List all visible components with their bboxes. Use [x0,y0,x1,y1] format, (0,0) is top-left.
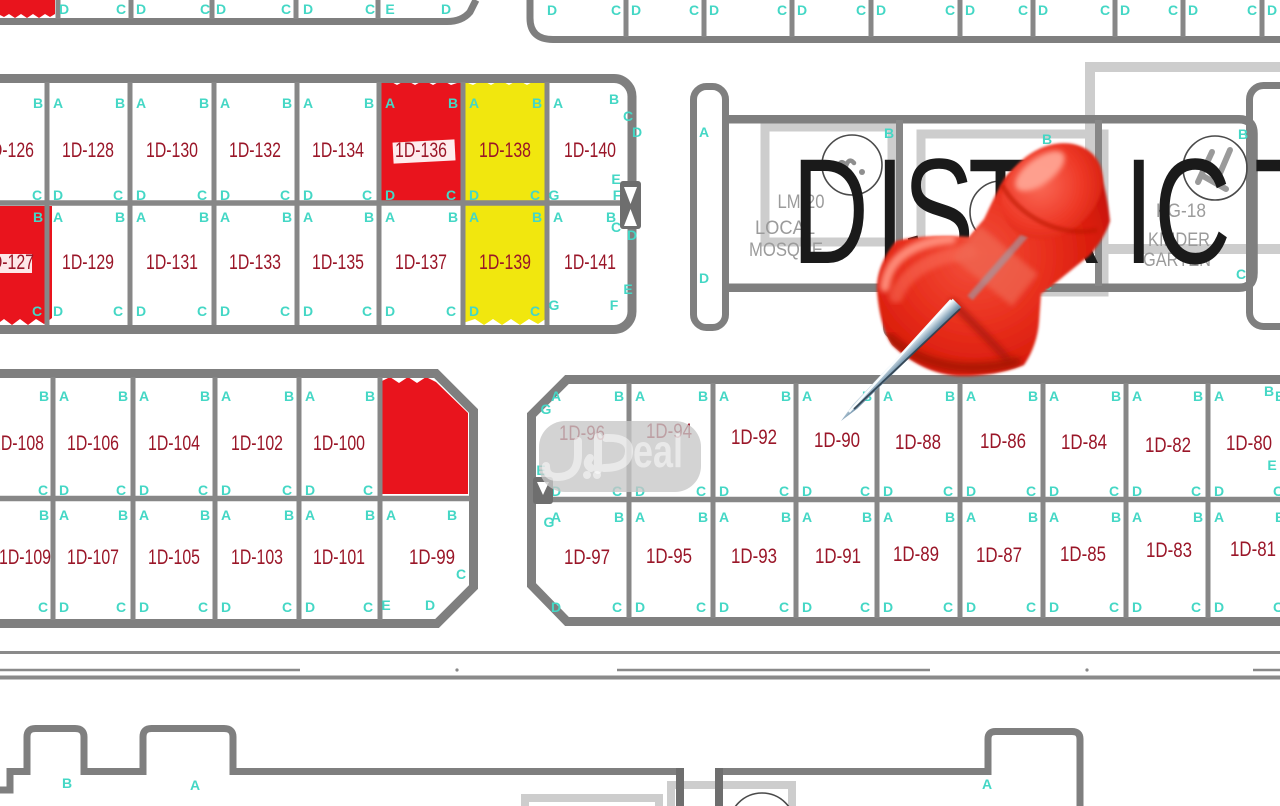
svg-text:C: C [1247,2,1257,18]
svg-text:A: A [59,507,69,523]
svg-text:B: B [1264,383,1274,399]
svg-text:D: D [303,187,313,203]
svg-text:A: A [635,509,645,525]
svg-text:A: A [1214,509,1224,525]
svg-text:E: E [381,597,390,613]
svg-text:1D-86: 1D-86 [980,430,1026,453]
svg-text:B: B [447,507,457,523]
svg-text:C: C [363,599,373,615]
svg-text:B: B [33,95,43,111]
svg-text:B: B [282,209,292,225]
svg-text:C: C [113,187,123,203]
svg-text:C: C [116,1,126,17]
svg-text:D: D [305,599,315,615]
svg-text:D: D [797,2,807,18]
svg-text:C: C [611,219,621,235]
svg-text:D: D [631,2,641,18]
svg-text:C: C [32,303,42,319]
svg-text:A: A [220,209,230,225]
svg-text:D: D [221,599,231,615]
svg-text:C: C [1191,483,1201,499]
svg-text:C: C [1236,266,1246,282]
svg-text:D: D [965,2,975,18]
svg-text:B: B [200,388,210,404]
svg-text:1D-136: 1D-136 [395,139,447,162]
svg-text:B: B [33,209,43,225]
svg-text:D: D [220,303,230,319]
svg-text:A: A [303,95,313,111]
svg-text:D: D [425,597,435,613]
svg-text:D: D [627,227,637,243]
svg-text:T: T [1254,127,1280,295]
svg-text:C: C [113,303,123,319]
svg-text:B: B [199,95,209,111]
svg-text:C: C [1026,483,1036,499]
svg-text:C: C [281,1,291,17]
svg-text:D: D [59,599,69,615]
svg-text:B: B [118,388,128,404]
svg-text:A: A [699,124,709,140]
svg-text:G: G [541,401,552,417]
svg-text:D: D [1049,599,1059,615]
svg-text:1D-137: 1D-137 [395,251,447,274]
svg-text:D: D [136,303,146,319]
svg-text:A: A [385,209,395,225]
svg-text:C: C [1273,599,1280,615]
svg-text:B: B [614,509,624,525]
svg-text:1D-97: 1D-97 [564,546,610,569]
svg-text:D: D [802,483,812,499]
svg-text:G: G [544,514,555,530]
svg-text:B: B [532,95,542,111]
svg-text:A: A [802,388,812,404]
svg-text:1D-141: 1D-141 [564,251,616,274]
svg-text:B: B [781,509,791,525]
svg-text:1D-85: 1D-85 [1060,543,1106,566]
svg-text:1D-140: 1D-140 [564,139,616,162]
svg-text:eal: eal [633,425,683,477]
svg-text:D: D [709,2,719,18]
svg-text:D: D [136,1,146,17]
svg-text:D: D [547,2,557,18]
svg-text:C: C [856,2,866,18]
svg-text:A: A [53,209,63,225]
svg-text:B: B [1193,388,1203,404]
svg-text:B: B [448,95,458,111]
svg-text:1D-126: 1D-126 [0,139,34,162]
svg-text:C: C [38,599,48,615]
svg-text:A: A [966,509,976,525]
svg-text:1D-130: 1D-130 [146,139,198,162]
svg-text:1D-132: 1D-132 [229,139,281,162]
svg-text:B: B [365,388,375,404]
svg-text:B: B [284,507,294,523]
svg-text:D: D [632,124,642,140]
svg-text:C: C [282,482,292,498]
svg-text:B: B [945,509,955,525]
svg-text:1D-83: 1D-83 [1146,539,1192,562]
svg-text:C: C [446,303,456,319]
svg-text:C: C [611,2,621,18]
svg-text:1D-104: 1D-104 [148,432,200,455]
svg-text:B: B [284,388,294,404]
svg-text:A: A [220,95,230,111]
svg-text:B: B [1111,509,1121,525]
svg-text:D: D [551,599,561,615]
svg-text:C: C [623,108,633,124]
svg-text:D: D [883,599,893,615]
svg-text:1D-138: 1D-138 [479,139,531,162]
svg-text:1D-105: 1D-105 [148,546,200,569]
svg-text:C: C [612,599,622,615]
svg-text:A: A [385,95,395,111]
svg-text:C: C [198,482,208,498]
svg-text:A: A [719,509,729,525]
svg-text:A: A [1214,388,1224,404]
svg-text:C: C [197,187,207,203]
svg-text:D: D [469,187,479,203]
svg-text:D: D [221,482,231,498]
svg-text:D: D [719,483,729,499]
svg-text:D: D [1188,2,1198,18]
svg-text:D: D [966,483,976,499]
svg-text:C: C [280,187,290,203]
svg-text:1D-89: 1D-89 [893,543,939,566]
svg-text:B: B [614,388,624,404]
svg-text:C: C [779,599,789,615]
svg-text:D: D [1214,599,1224,615]
svg-text:D: D [469,303,479,319]
svg-text:B: B [115,95,125,111]
svg-text:A: A [802,509,812,525]
svg-text:1D-81: 1D-81 [1230,538,1276,561]
svg-text:D: D [876,2,886,18]
svg-text:B: B [1028,509,1038,525]
svg-text:C: C [1191,599,1201,615]
svg-text:B: B [118,507,128,523]
svg-text:1D-129: 1D-129 [62,251,114,274]
svg-text:A: A [136,95,146,111]
svg-text:D: D [1038,2,1048,18]
svg-text:D: D [53,187,63,203]
svg-text:B: B [448,209,458,225]
svg-text:1D-103: 1D-103 [231,546,283,569]
svg-text:A: A [966,388,976,404]
svg-text:B: B [1238,126,1248,142]
svg-text:D: D [139,482,149,498]
svg-text:G: G [549,187,560,203]
svg-text:C: C [198,599,208,615]
svg-text:A: A [982,776,992,792]
svg-text:D: D [883,483,893,499]
svg-text:C: C [1026,599,1036,615]
svg-text:A: A [303,209,313,225]
svg-text:B: B [39,388,49,404]
svg-text:D: D [385,187,395,203]
svg-text:A: A [221,507,231,523]
svg-text:B: B [200,507,210,523]
svg-text:B: B [609,91,619,107]
svg-text:1D-99: 1D-99 [409,546,455,569]
svg-text:1D-101: 1D-101 [313,546,365,569]
svg-text:D: D [1267,2,1277,18]
svg-text:1D-109: 1D-109 [0,546,51,569]
svg-text:A: A [59,388,69,404]
svg-text:1D-106: 1D-106 [67,432,119,455]
svg-text:B: B [364,209,374,225]
svg-text:C: C [362,303,372,319]
svg-text:A: A [136,209,146,225]
svg-text:1D-107: 1D-107 [67,546,119,569]
svg-text:D: D [1214,483,1224,499]
svg-text:C: C [530,187,540,203]
svg-text:D: D [59,1,69,17]
svg-text:C: C [1100,2,1110,18]
svg-text:1D-92: 1D-92 [731,426,777,449]
svg-text:1D-134: 1D-134 [312,139,364,162]
svg-text:C: C [943,599,953,615]
svg-text:B: B [781,388,791,404]
svg-text:C: C [363,482,373,498]
svg-text:B: B [282,95,292,111]
svg-text:D: D [792,127,869,295]
svg-text:B: B [698,388,708,404]
svg-text:D: D [1049,483,1059,499]
svg-text:A: A [469,209,479,225]
svg-text:B: B [1275,388,1280,404]
svg-text:D: D [139,599,149,615]
svg-text:F: F [610,297,619,313]
svg-text:A: A [305,388,315,404]
svg-text:C: C [860,483,870,499]
svg-text:D: D [216,1,226,17]
svg-text:C: C [362,187,372,203]
svg-text:B: B [862,509,872,525]
svg-text:D: D [303,303,313,319]
svg-text:B: B [698,509,708,525]
svg-text:E: E [611,171,620,187]
svg-text:C: C [1109,483,1119,499]
svg-text:E: E [623,281,632,297]
svg-text:D: D [699,270,709,286]
svg-text:B: B [365,507,375,523]
svg-text:D: D [1132,483,1142,499]
svg-text:C: C [945,2,955,18]
svg-text:1D-80: 1D-80 [1226,432,1272,455]
svg-text:1D-90: 1D-90 [814,429,860,452]
svg-text:A: A [305,507,315,523]
svg-text:A: A [883,509,893,525]
svg-text:C: C [116,599,126,615]
svg-text:D: D [635,599,645,615]
svg-text:A: A [190,777,200,793]
svg-text:C: C [32,187,42,203]
svg-text:1D-82: 1D-82 [1145,434,1191,457]
svg-text:B: B [115,209,125,225]
svg-text:C: C [38,482,48,498]
svg-text:1D-128: 1D-128 [62,139,114,162]
svg-text:B: B [364,95,374,111]
svg-text:A: A [1049,388,1059,404]
svg-text:C: C [777,2,787,18]
svg-text:C: C [696,483,706,499]
svg-text:A: A [883,388,893,404]
svg-text:D: D [385,303,395,319]
svg-text:C: C [1168,2,1178,18]
svg-text:1D-95: 1D-95 [646,545,692,568]
svg-text:1D-84: 1D-84 [1061,431,1107,454]
svg-text:A: A [469,95,479,111]
svg-text:1D-139: 1D-139 [479,251,531,274]
svg-text:1D-133: 1D-133 [229,251,281,274]
svg-text:1D-108: 1D-108 [0,432,44,455]
svg-text:D: D [53,303,63,319]
svg-text:I: I [1124,127,1154,295]
svg-text:A: A [221,388,231,404]
svg-text:B: B [39,507,49,523]
svg-text:C: C [280,303,290,319]
svg-text:A: A [386,507,396,523]
svg-text:1D-87: 1D-87 [976,544,1022,567]
svg-text:A: A [1132,509,1142,525]
svg-text:B: B [62,775,72,791]
svg-text:A: A [139,507,149,523]
svg-text:C: C [365,1,375,17]
svg-text:C: C [116,482,126,498]
svg-text:C: C [200,1,210,17]
svg-text:D: D [59,482,69,498]
svg-text:D: D [1132,599,1142,615]
svg-text:D: D [303,1,313,17]
svg-text:C: C [1154,127,1231,295]
svg-text:C: C [860,599,870,615]
svg-text:1D-100: 1D-100 [313,432,365,455]
svg-text:A: A [553,95,563,111]
svg-text:E: E [385,1,394,17]
svg-text:C: C [1109,599,1119,615]
svg-text:C: C [446,187,456,203]
svg-text:A: A [139,388,149,404]
svg-text:B: B [532,209,542,225]
svg-text:B: B [945,388,955,404]
svg-text:D: D [1120,2,1130,18]
svg-text:C: C [530,303,540,319]
svg-text:C: C [282,599,292,615]
svg-text:1D-102: 1D-102 [231,432,283,455]
svg-text:C: C [1018,2,1028,18]
svg-text:B: B [1275,509,1280,525]
svg-text:B: B [199,209,209,225]
svg-text:B: B [1028,388,1038,404]
svg-text:G: G [549,297,560,313]
svg-text:E: E [1267,457,1276,473]
svg-text:A: A [1049,509,1059,525]
svg-text:D: D [802,599,812,615]
svg-text:1D-127: 1D-127 [0,251,34,274]
svg-text:D: D [719,599,729,615]
svg-text:A: A [553,209,563,225]
svg-text:D: D [441,1,451,17]
svg-text:B: B [1111,388,1121,404]
svg-text:1D-91: 1D-91 [815,545,861,568]
svg-text:D: D [136,187,146,203]
svg-text:A: A [719,388,729,404]
svg-text:C: C [456,566,466,582]
svg-text:C: C [943,483,953,499]
svg-text:1D-135: 1D-135 [312,251,364,274]
svg-text:C: C [1273,483,1280,499]
svg-text:C: C [197,303,207,319]
svg-text:A: A [635,388,645,404]
svg-text:1D-131: 1D-131 [146,251,198,274]
svg-text:A: A [53,95,63,111]
svg-text:A: A [551,388,561,404]
svg-text:A: A [1132,388,1142,404]
svg-text:B: B [1193,509,1203,525]
svg-text:C: C [696,599,706,615]
svg-text:D: D [966,599,976,615]
svg-text:1D-88: 1D-88 [895,431,941,454]
svg-text:D: D [305,482,315,498]
svg-text:C: C [689,2,699,18]
svg-text:C: C [779,483,789,499]
svg-text:1D-93: 1D-93 [731,545,777,568]
svg-text:D: D [220,187,230,203]
